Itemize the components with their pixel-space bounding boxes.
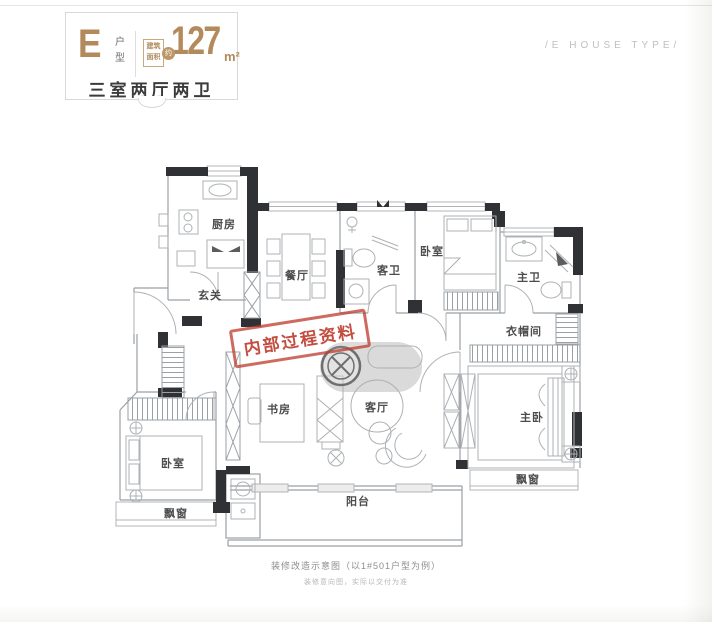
room-label-kitchen: 厨房 [212, 217, 236, 231]
room-label-bedroom-top: 卧室 [420, 244, 444, 258]
room-label-bedroom-left: 卧室 [161, 456, 185, 470]
room-label-dining: 餐厅 [284, 268, 309, 282]
caption-block: 装修改造示意图（以1#501户型为例） 装修意向图，实际以交付为准 [0, 559, 712, 587]
approx-badge: 约 [162, 47, 175, 60]
room-label-foyer: 玄关 [198, 288, 222, 302]
caption-line2: 装修意向图，实际以交付为准 [0, 577, 712, 587]
room-label-bay-left: 飘窗 [164, 506, 188, 520]
room-label-guest-bath: 客卫 [376, 263, 401, 277]
room-label-study: 书房 [267, 402, 291, 416]
room-label-bay-right: 飘窗 [516, 472, 540, 486]
room-label-master-bedroom: 主卧 [520, 410, 544, 424]
room-label-balcony: 阳台 [346, 494, 370, 508]
room-label-master-bath: 主卫 [517, 270, 541, 284]
caption-line1: 装修改造示意图（以1#501户型为例） [0, 559, 712, 572]
room-label-cloakroom: 衣帽间 [506, 324, 542, 338]
room-label-living: 客厅 [364, 400, 389, 414]
